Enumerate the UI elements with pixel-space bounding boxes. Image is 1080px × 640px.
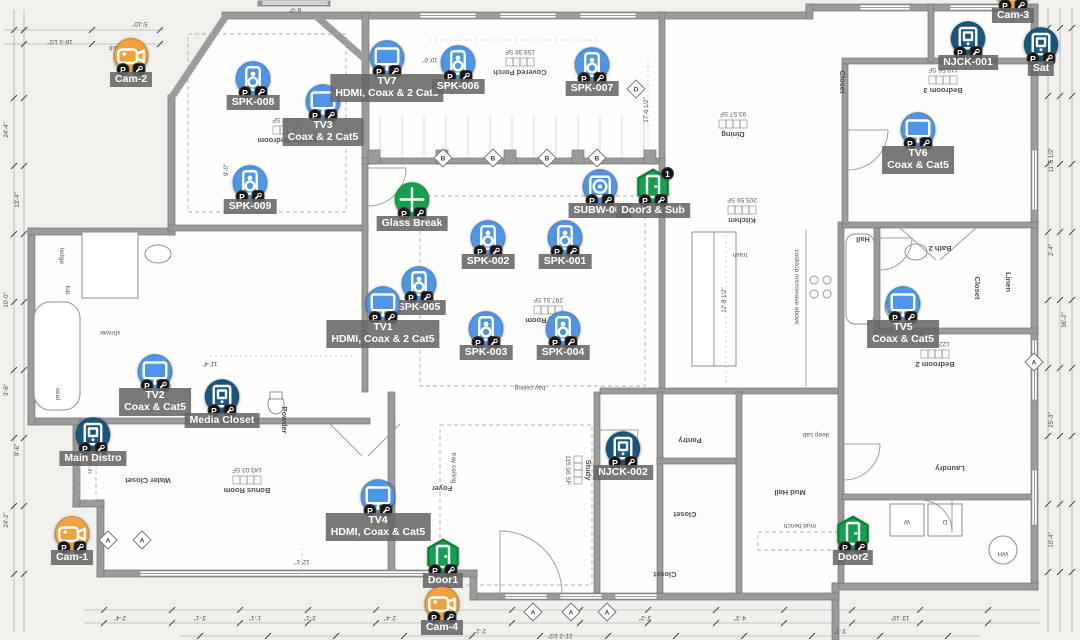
device-label: Sat [1028, 61, 1054, 76]
annotation: cooktop microwave above [793, 249, 800, 325]
device-label: SPK-002 [462, 254, 515, 269]
room-label: Water Closet [125, 476, 171, 485]
device-label: NJCK-002 [593, 465, 653, 480]
device-label: TV2Coax & Cat5 [119, 388, 191, 416]
dimension-label: 3'-7" [834, 627, 846, 633]
room-area: 205.59 SF [727, 196, 757, 203]
dimension-label: 24'-4" [4, 122, 10, 137]
dimension-label: 4'-3" [734, 614, 746, 620]
annotation: bay ceiling [514, 384, 545, 391]
room-label: Pantry [678, 436, 702, 445]
room-area: 159.38 SF [505, 48, 535, 55]
annotation: tray ceiling [450, 452, 457, 483]
room-label: Mud Hall [774, 488, 805, 497]
room-name: Water Closet [125, 476, 171, 485]
dimension-label: 3'-1" [194, 614, 206, 620]
room-name: Foyer [432, 484, 453, 493]
room-area: 93.57 SF [720, 110, 746, 117]
device-label: NJCK-001 [938, 55, 998, 70]
dimension-label: 21'-2 1/2" [547, 632, 572, 638]
device-label: TV1HDMI, Coax & 2 Cat5 [326, 320, 439, 348]
dimension-label: 10'-0" [422, 56, 437, 62]
device-label: Door2 [833, 550, 873, 565]
room-name: Bonus Room [223, 486, 270, 495]
annotation: tub [64, 285, 71, 294]
room-name: Closet [973, 277, 982, 300]
room-name: Powder [280, 406, 289, 433]
window-tag-letter: A [531, 610, 536, 617]
device-label: SPK-007 [566, 81, 619, 96]
device-label: Main Distro [59, 451, 126, 466]
device-label: Door3 & Sub [616, 203, 690, 218]
dimension-label: 12'-1" [294, 558, 309, 564]
window-tag-letter: A [140, 538, 145, 545]
window-tag-letter: B [595, 156, 600, 163]
device-label: SPK-009 [224, 199, 277, 214]
room-area: 297.51 SF [533, 296, 563, 303]
window-tag-letter: A [569, 610, 574, 617]
window-tag-letter: B [545, 156, 550, 163]
dimension-label: 9'-6" [15, 444, 21, 456]
dimension-label: 6'-0" [289, 6, 301, 12]
annotation: D [942, 518, 947, 525]
room-area: 143.03 SF [232, 466, 262, 473]
dimension-label: 13'-4" [15, 192, 21, 207]
room-name: Closet [838, 71, 847, 94]
dimension-label: 12'-8 1/2" [722, 287, 728, 312]
room-label: Hall [856, 235, 870, 244]
dimension-label: 25'-3" [1049, 412, 1055, 427]
device-label: SPK-006 [432, 79, 485, 94]
device-label: Media Closet [185, 413, 260, 428]
device-label: TV4HDMI, Coax & Cat5 [326, 513, 431, 541]
room-area: 115.96 SF [564, 455, 571, 485]
dimension-label: 3'-6" [4, 384, 10, 396]
room-label: Closet [973, 277, 982, 300]
annotation: deep cab [802, 431, 829, 438]
room-label: Closet [653, 570, 676, 579]
room-name: Bedroom 2 [915, 360, 954, 369]
dimension-label: 16'-5 1/2" [47, 38, 72, 44]
device-label: SPK-001 [539, 254, 592, 269]
annotation: W [903, 518, 910, 525]
room-label: Closet [673, 510, 696, 519]
room-name: Study [584, 460, 593, 482]
dimension-label: 11'-5 1/2" [1049, 148, 1055, 173]
room-label: Linen [1004, 272, 1013, 292]
window-tag-letter: A [106, 538, 111, 545]
window-tag-letter: A [605, 610, 610, 617]
room-name: Dining [721, 130, 745, 139]
room-name: Mud Hall [774, 488, 805, 497]
room-name: Linen [1004, 272, 1013, 292]
dimension-label: 13'-10" [891, 614, 910, 620]
annotation: shower [99, 329, 121, 336]
annotation: trash [732, 251, 747, 258]
dimension-label: 1'-1" [249, 614, 261, 620]
dimension-label: 2'-4" [384, 614, 396, 620]
room-label: Laundry [934, 464, 964, 473]
room-name: Kitchen [728, 216, 756, 225]
annotation: ledge [58, 248, 65, 264]
floorplan-canvas[interactable]: Covered Porch159.38 SFMaster Bedroom219.… [0, 0, 1080, 640]
device-label: SPK-003 [460, 345, 513, 360]
device-label: TV3Coax & 2 Cat5 [283, 118, 364, 146]
room-name: Bath 2 [929, 244, 952, 253]
window-tag-letter: B [491, 156, 496, 163]
device-label: Cam-2 [110, 72, 152, 87]
device-label: Cam-3 [992, 8, 1034, 23]
annotation: mud bench [784, 522, 817, 529]
room-name: Closet [673, 510, 696, 519]
dimension-label: 2'-4" [1049, 244, 1055, 256]
dimension-label: 3'-1" [304, 614, 316, 620]
dimension-label: 10'-4" [1049, 532, 1055, 547]
room-name: Pantry [678, 436, 702, 445]
room-label: Foyer [432, 484, 453, 493]
dimension-label: 3'-2" [639, 614, 651, 620]
room-name: Bedroom 3 [923, 86, 962, 95]
room-label: Powder [280, 406, 289, 433]
room-name: Hall [856, 235, 870, 244]
annotation: WH [997, 550, 1008, 557]
dimension-label: 36'-2" [1062, 312, 1068, 327]
dimension-label: 11'-4" [203, 360, 218, 366]
device-label: TV5Coax & Cat5 [867, 320, 939, 348]
dimension-label: 10'-0" [4, 292, 10, 307]
room-name: Laundry [934, 464, 964, 473]
device-label: SPK-004 [537, 345, 590, 360]
annotation: seat [54, 388, 61, 400]
dimension-label: 9'-0" [224, 164, 230, 176]
room-name: Covered Porch [493, 68, 547, 77]
room-name: Closet [653, 570, 676, 579]
dimension-label: 17'-6 1/2" [644, 97, 650, 122]
dimension-label: 24'-2" [4, 512, 10, 527]
device-label: Cam-1 [51, 550, 93, 565]
window-tag-letter: A [1032, 360, 1037, 367]
room-label: Bath 2 [929, 244, 952, 253]
window-tag-letter: D [634, 87, 639, 94]
device-label: Cam-4 [421, 620, 463, 635]
room-label: Closet [838, 71, 847, 94]
device-label: SPK-008 [227, 95, 280, 110]
device-label: TV7HDMI, Coax & 2 Cat5 [330, 74, 443, 102]
count-badge: 1 [661, 167, 674, 180]
device-label: Glass Break [377, 216, 448, 231]
window-tag-letter: B [441, 156, 446, 163]
dimension-label: 2'-2" [474, 627, 486, 633]
device-label: TV6Coax & Cat5 [882, 146, 954, 174]
dimension-label: 2'-4" [114, 614, 126, 620]
dimension-label: 5'-10" [132, 20, 147, 26]
